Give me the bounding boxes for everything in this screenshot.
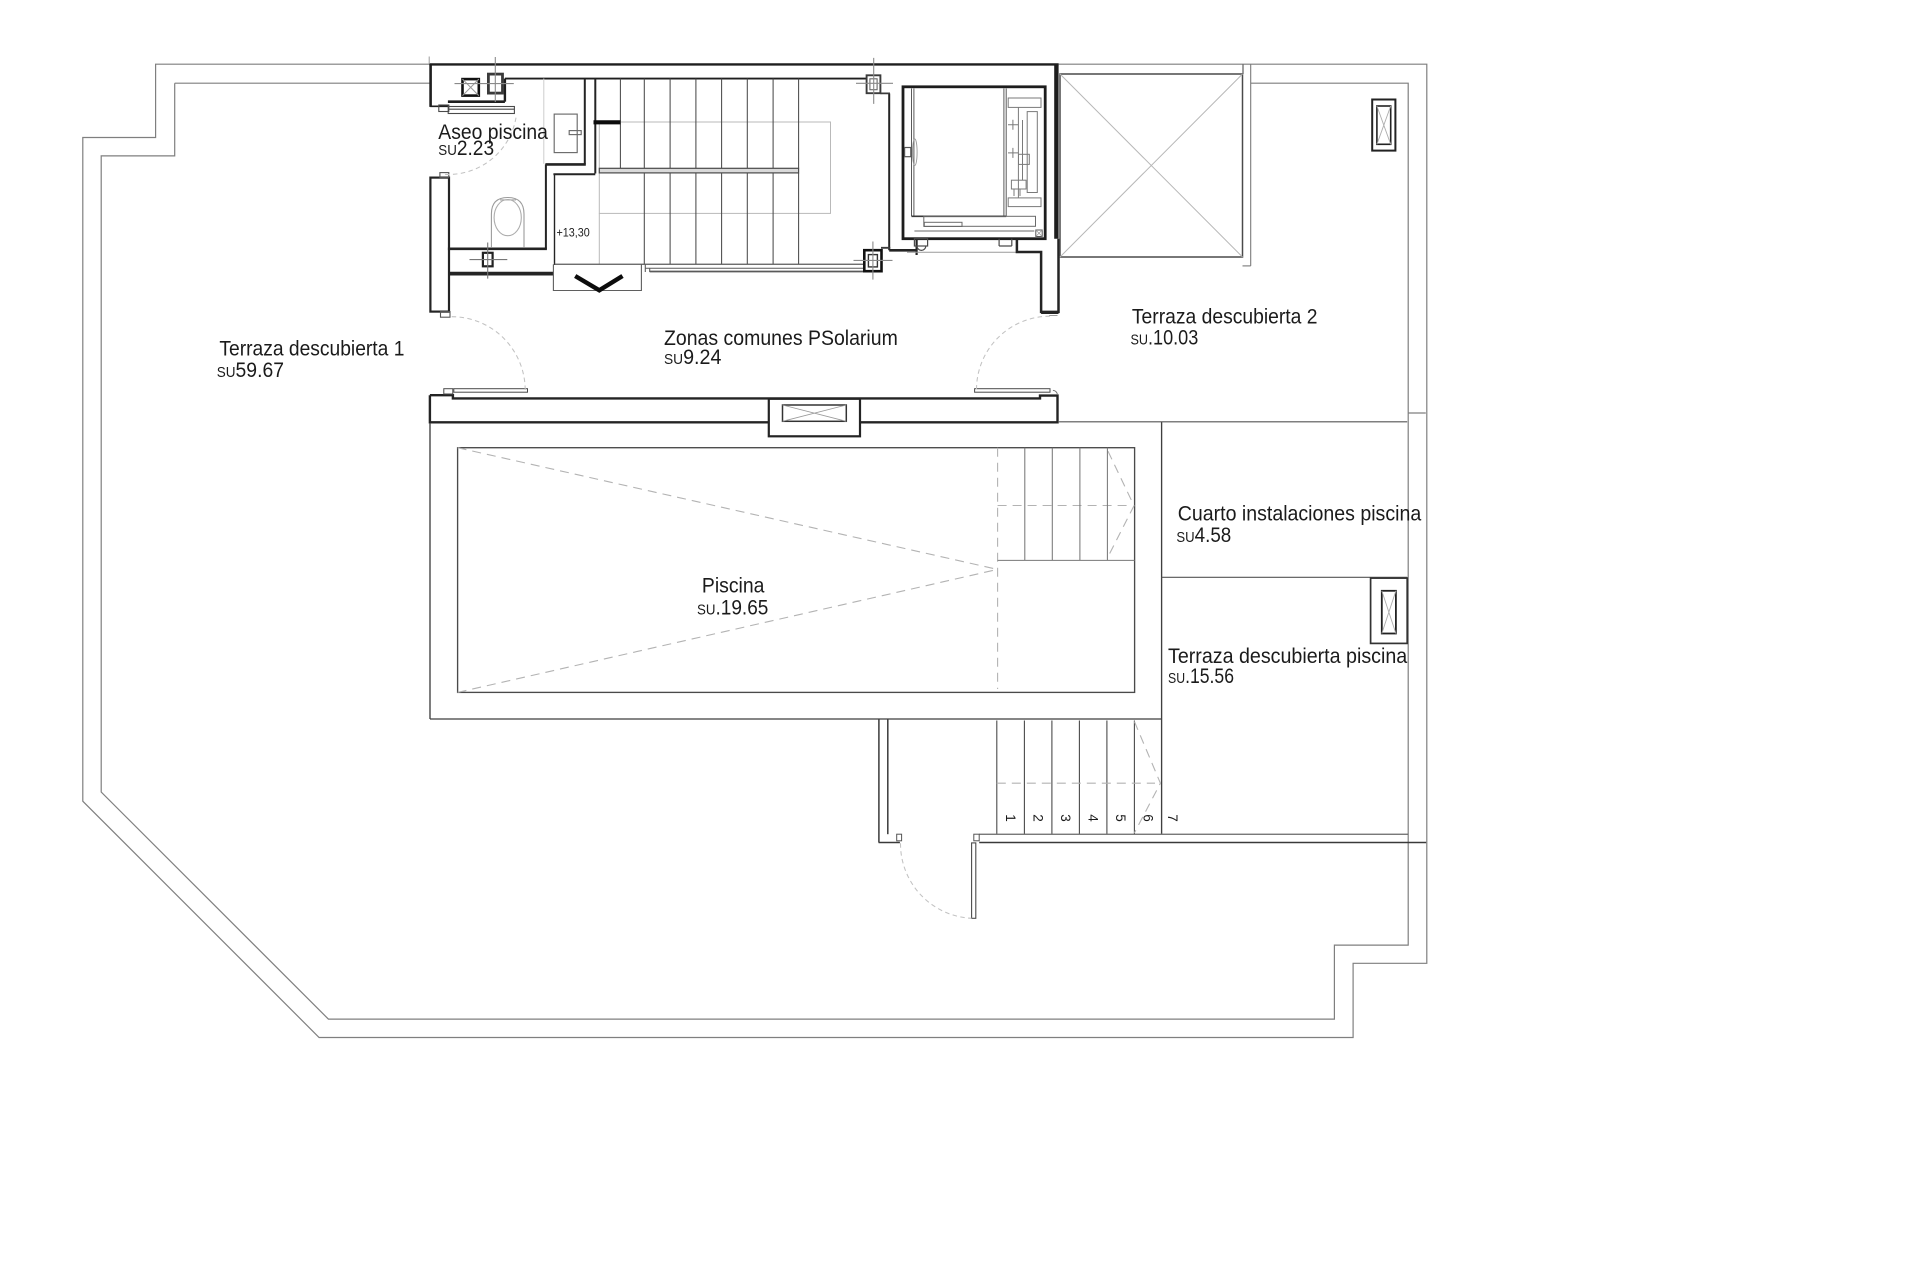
- svg-text:4: 4: [1086, 814, 1101, 822]
- svg-text:5: 5: [1113, 814, 1128, 822]
- svg-text:7: 7: [1165, 814, 1180, 822]
- svg-text:Piscina: Piscina: [702, 574, 765, 598]
- svg-text:+13,30: +13,30: [557, 226, 591, 240]
- svg-text:1: 1: [1003, 814, 1018, 822]
- svg-text:3: 3: [1058, 814, 1073, 822]
- svg-text:6: 6: [1141, 814, 1156, 822]
- svg-text:2: 2: [1031, 814, 1046, 822]
